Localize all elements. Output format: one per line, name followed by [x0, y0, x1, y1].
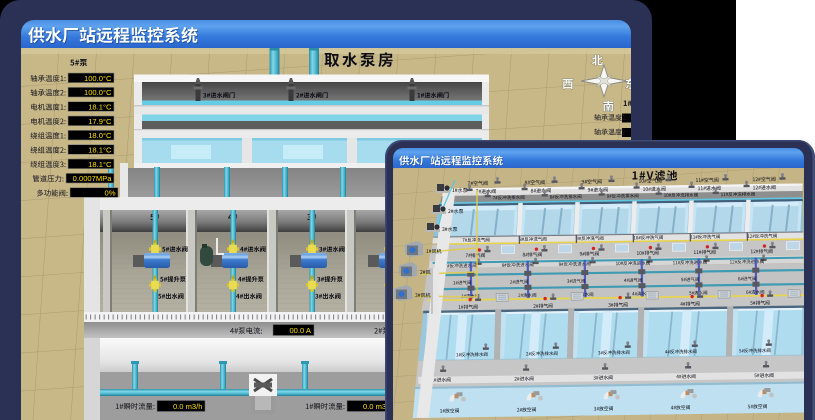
svg-text:18.1°C: 18.1°C: [88, 160, 112, 169]
svg-text:17.9°C: 17.9°C: [88, 117, 112, 126]
svg-text:00.0 A: 00.0 A: [289, 326, 311, 335]
svg-text:100.0°C: 100.0°C: [84, 88, 112, 97]
svg-text:0%: 0%: [105, 188, 116, 197]
svg-text:18.1°C: 18.1°C: [88, 145, 112, 154]
svg-text:0.0007MPa: 0.0007MPa: [73, 174, 113, 183]
svg-text:0.0 m3/h: 0.0 m3/h: [173, 402, 203, 411]
svg-text:100.0°C: 100.0°C: [84, 74, 112, 83]
svg-text:18.1°C: 18.1°C: [88, 102, 112, 111]
svg-text:18.0°C: 18.0°C: [88, 131, 112, 140]
